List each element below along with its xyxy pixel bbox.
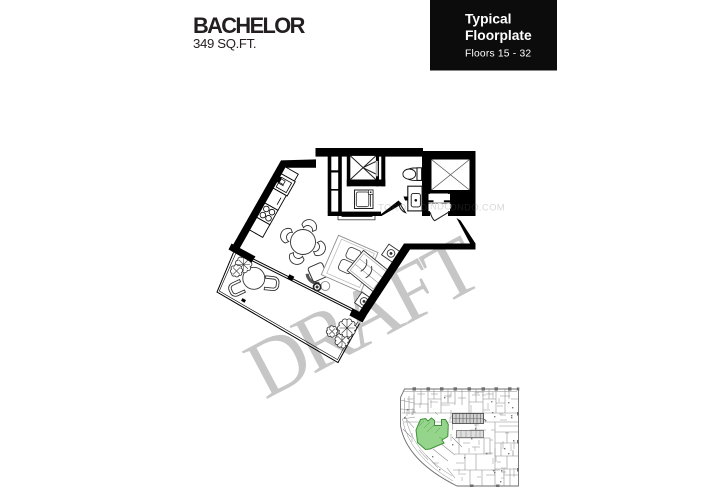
svg-text:349 SQ.FT.: 349 SQ.FT. — [193, 36, 256, 51]
svg-text:NDO: NDO — [430, 202, 452, 213]
svg-text:BACHELOR: BACHELOR — [193, 13, 306, 38]
svg-text:Typical: Typical — [465, 12, 512, 27]
svg-text:Floors 15 - 32: Floors 15 - 32 — [465, 49, 531, 60]
svg-text:Floorplate: Floorplate — [465, 28, 532, 43]
